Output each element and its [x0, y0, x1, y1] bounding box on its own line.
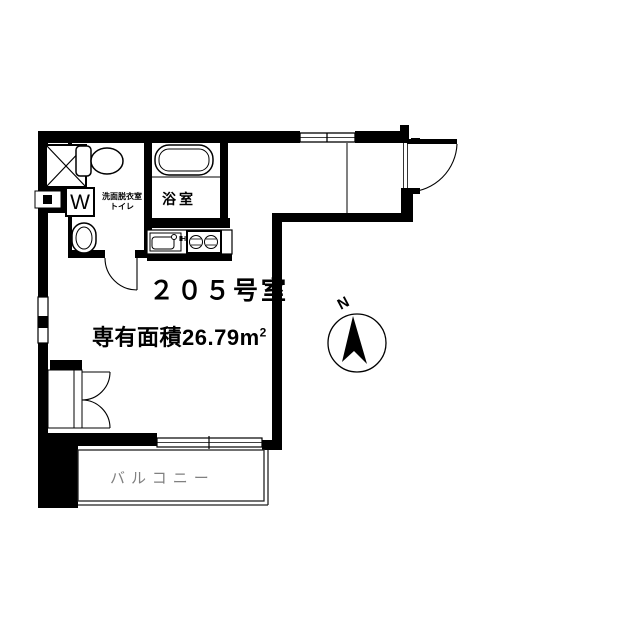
wall-mid-right [272, 213, 282, 450]
wall-bath-right [220, 143, 228, 223]
wall-top-left [38, 131, 300, 143]
wall-closet-top [50, 360, 82, 370]
stove-icon [187, 231, 221, 253]
balcony-label: バルコニー [110, 467, 215, 488]
kitchen-counter-front [147, 254, 232, 261]
area-unit: m [240, 325, 260, 350]
window-left [38, 297, 48, 343]
window-balcony [157, 436, 262, 449]
washing-machine-label: W [66, 191, 94, 215]
kitchen-counter [147, 230, 232, 254]
wall-room-bottom [78, 433, 157, 446]
basin-icon [72, 223, 96, 253]
wall-hall-bottom [280, 213, 413, 222]
room-number-label: ２０５号室 [149, 271, 289, 307]
area-label: 専有面積26.79m2 [92, 320, 267, 352]
kitchen-sink-icon [150, 233, 181, 251]
washroom-label-line1: 洗面脱衣室 [102, 192, 142, 201]
closet-doors [82, 372, 110, 428]
compass [328, 314, 386, 372]
bathroom-label: 浴室 [162, 189, 196, 209]
wall-bath-bottom [144, 218, 230, 228]
wall-top-right [355, 131, 403, 143]
ih-stove-label: IH [179, 236, 186, 243]
wall-corner-block [38, 433, 78, 508]
bathtub-icon [155, 145, 213, 175]
closet [48, 370, 82, 428]
entrance-door-leaf [407, 139, 457, 144]
washroom-label-line2: トイレ [110, 202, 134, 211]
toilet-icon [76, 146, 123, 176]
entrance-door-arc [409, 144, 457, 192]
wall-window-corner [262, 440, 282, 450]
washroom-toilet-label: 洗面脱衣室 トイレ [94, 192, 150, 212]
meter-box [35, 191, 61, 208]
area-superscript: 2 [260, 326, 267, 340]
compass-needle-icon [342, 316, 367, 364]
window-left-mullion [38, 316, 48, 328]
entrance-door [404, 139, 458, 192]
floorplan-page: ２０５号室 専有面積26.79m2 浴室 洗面脱衣室 トイレ バルコニー W I… [0, 0, 640, 640]
toilet-room-door [105, 258, 137, 290]
wall-left-lower [38, 343, 48, 433]
window-top [300, 133, 355, 142]
area-value: 専有面積26.79 [92, 325, 240, 350]
